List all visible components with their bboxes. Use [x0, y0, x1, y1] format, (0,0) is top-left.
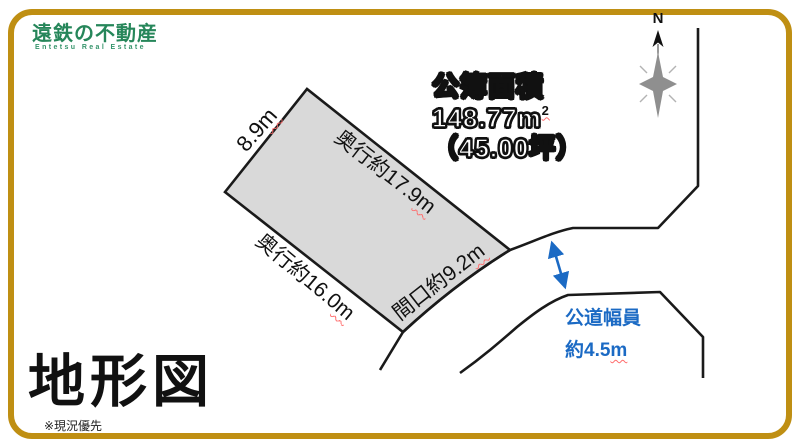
compass-star	[639, 52, 677, 118]
registered-area-title: 公簿面積	[432, 72, 583, 103]
registered-area-sqm-value: 148.77m	[432, 103, 542, 133]
road-width-caption-line2: 約4.5m	[565, 335, 627, 362]
disclaimer-note: ※現況優先	[44, 417, 102, 434]
road-width-unit: m	[610, 340, 627, 361]
entetsu-logo-subtext: Entetsu Real Estate	[35, 44, 146, 51]
road-width-caption-line1: 公道幅員	[565, 303, 641, 330]
registered-area-tsubo: （45.00坪）	[432, 133, 583, 163]
registered-area-sqm-sup: 2	[542, 103, 550, 118]
page-title: 地形図	[28, 336, 214, 418]
road-width-value: 約4.5	[565, 340, 610, 361]
registered-area-sqm: 148.77m2	[432, 103, 583, 133]
registered-area-block: 公簿面積 148.77m2 （45.00坪）	[432, 72, 583, 164]
road-width-double-arrow	[552, 243, 565, 287]
entetsu-logo-text: 遠鉄の不動産	[32, 17, 158, 46]
land-shape-diagram-page: 遠鉄の不動産 Entetsu Real Estate N 公簿面積 148.77…	[0, 0, 800, 445]
north-compass-icon	[639, 30, 677, 118]
compass-north-label: N	[653, 10, 664, 27]
